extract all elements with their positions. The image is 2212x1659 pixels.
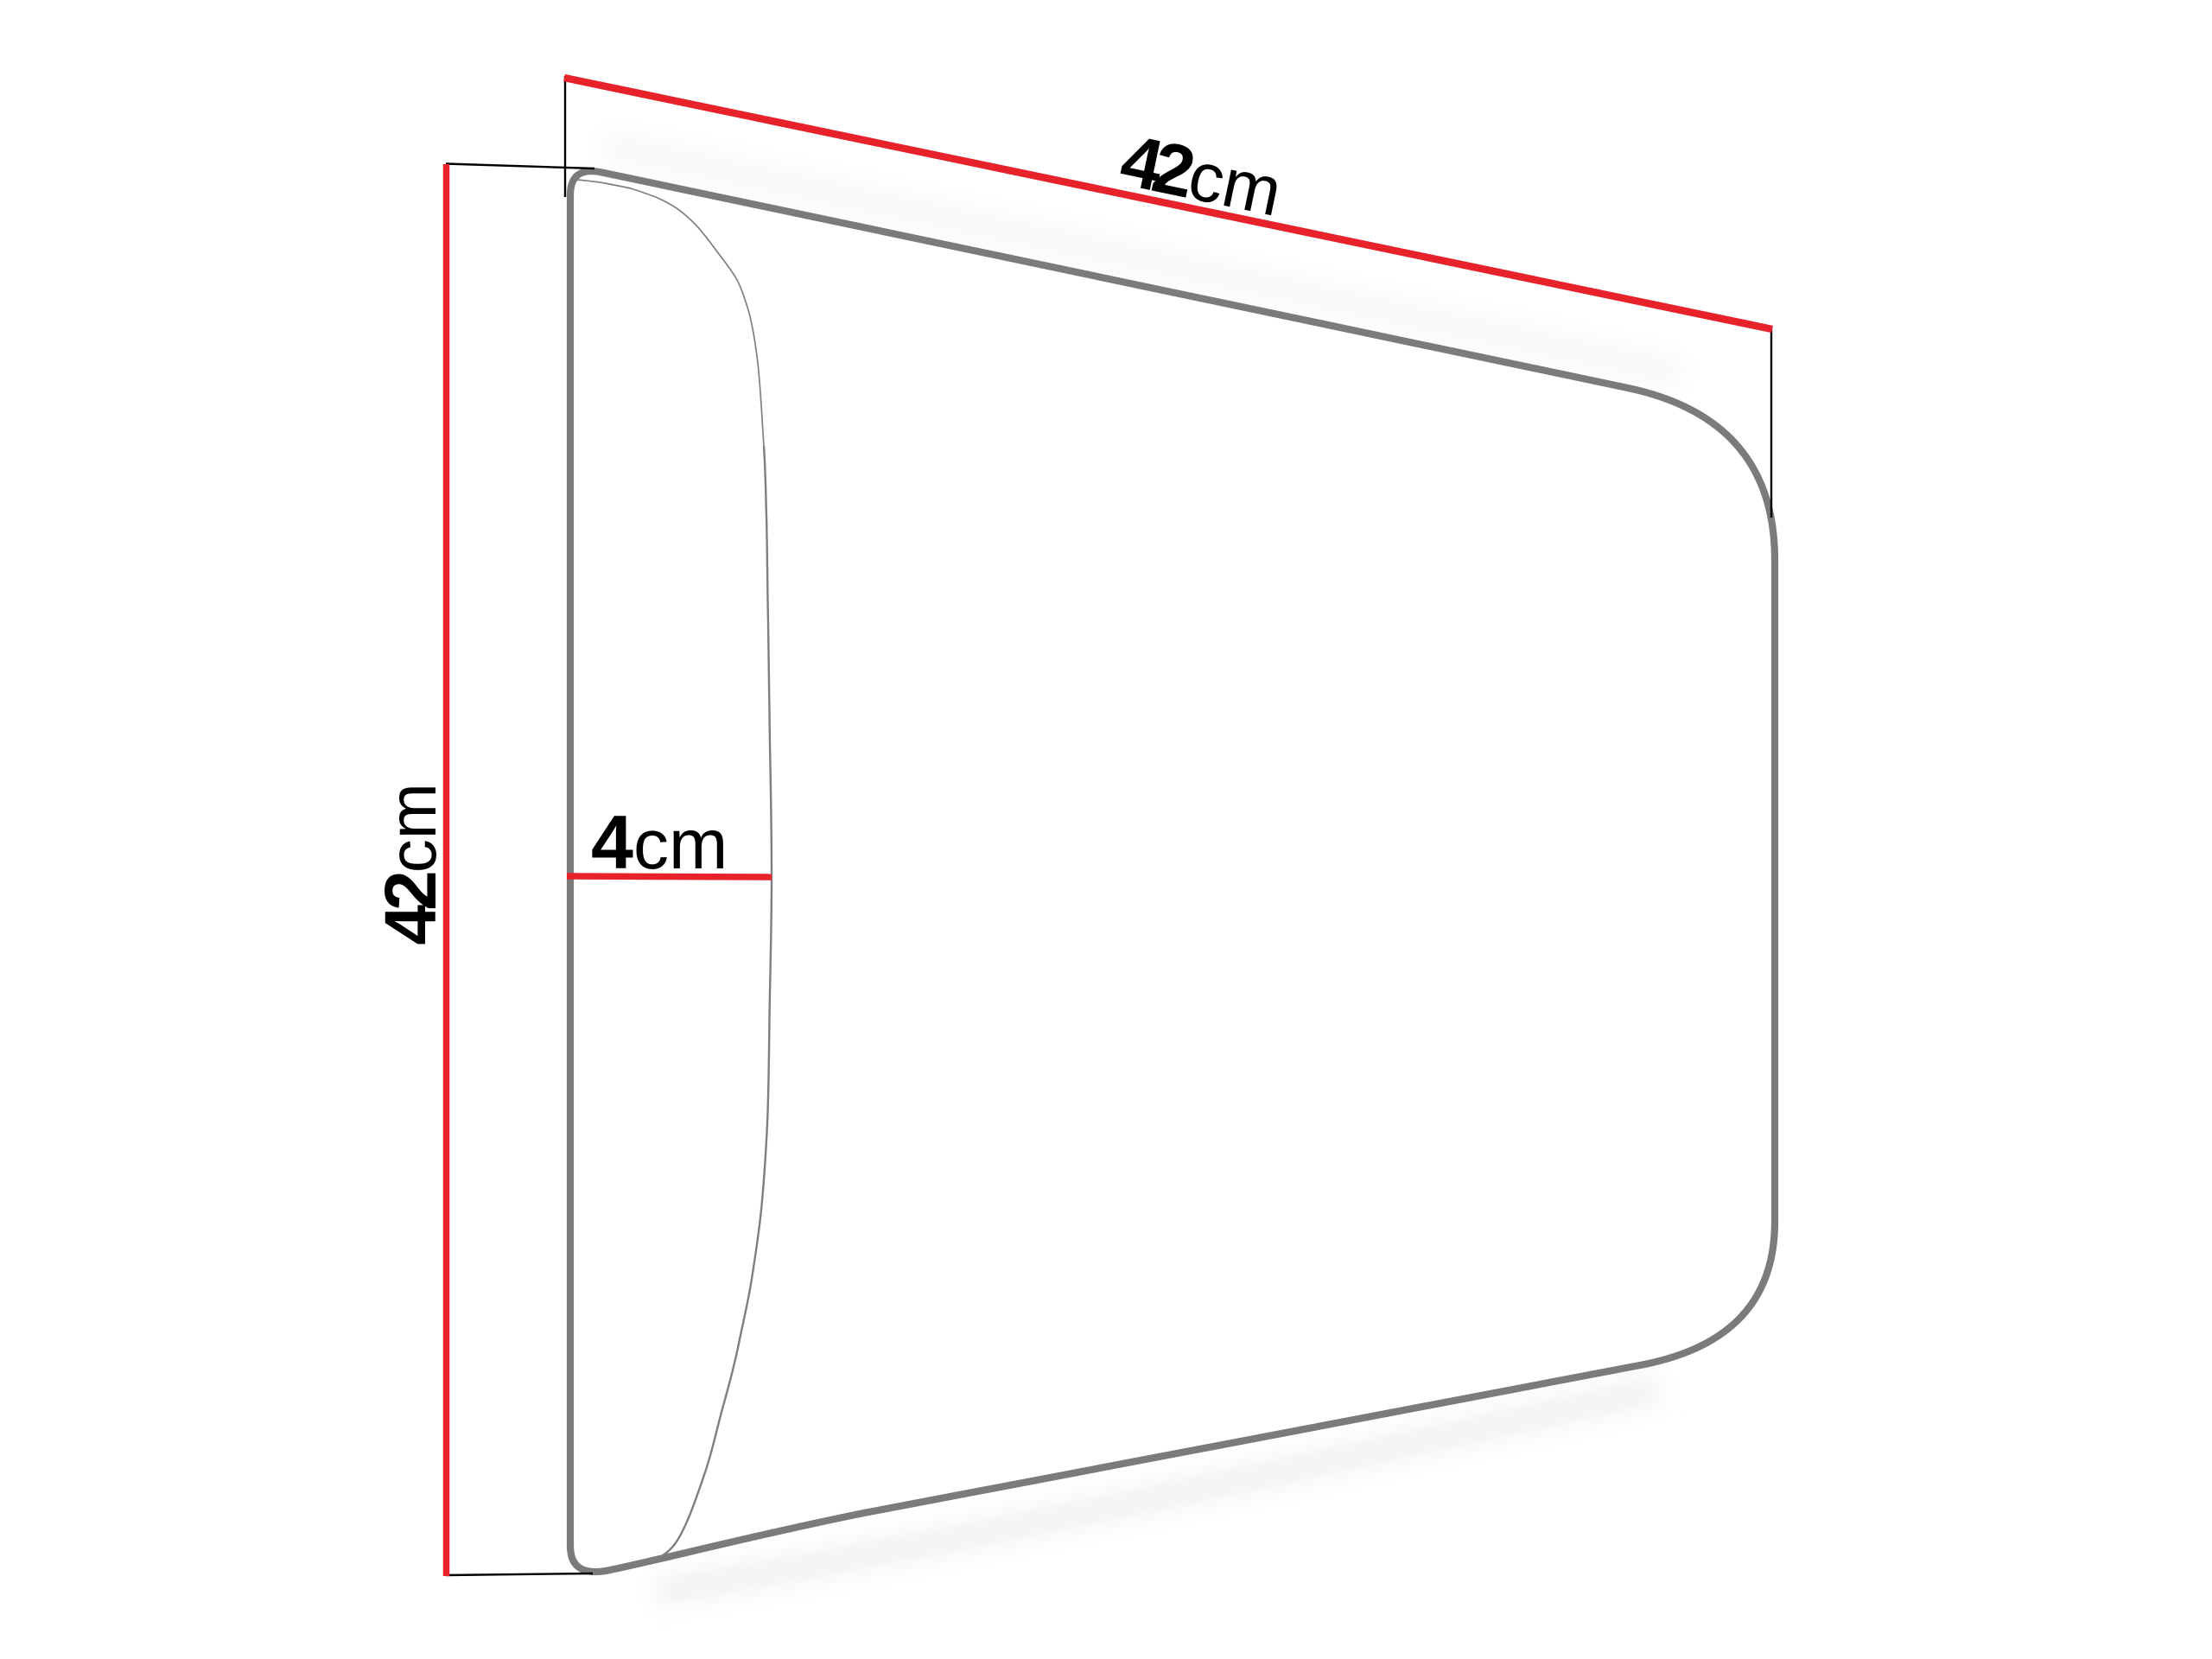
svg-text:42cm: 42cm: [370, 783, 451, 944]
svg-text:4cm: 4cm: [591, 799, 728, 885]
